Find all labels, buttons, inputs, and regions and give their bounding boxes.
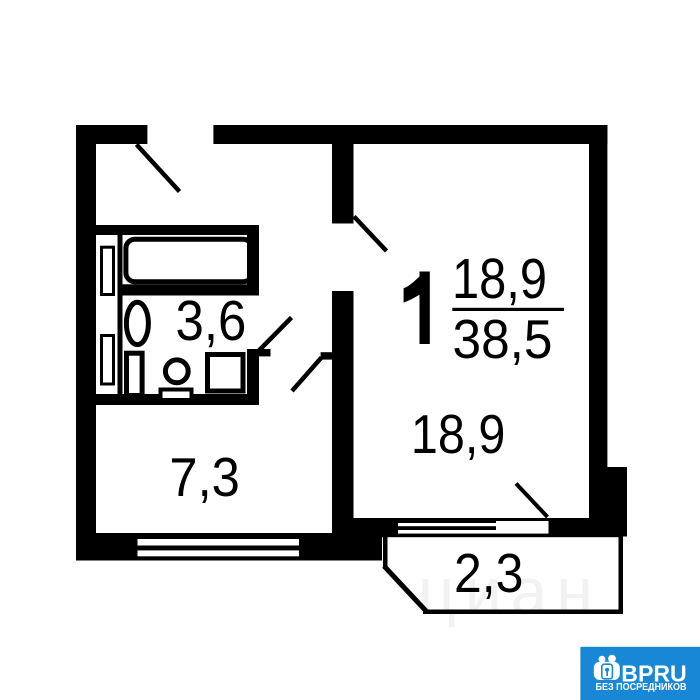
- svg-text:2,3: 2,3: [454, 542, 523, 604]
- svg-text:БЕЗ ПОСРЕДНИКОВ: БЕЗ ПОСРЕДНИКОВ: [596, 682, 687, 693]
- svg-text:18,9: 18,9: [452, 247, 547, 311]
- svg-text:38,5: 38,5: [453, 308, 553, 370]
- svg-text:18,9: 18,9: [411, 403, 505, 465]
- svg-text:7,3: 7,3: [169, 446, 240, 508]
- svg-text:3,6: 3,6: [176, 289, 247, 352]
